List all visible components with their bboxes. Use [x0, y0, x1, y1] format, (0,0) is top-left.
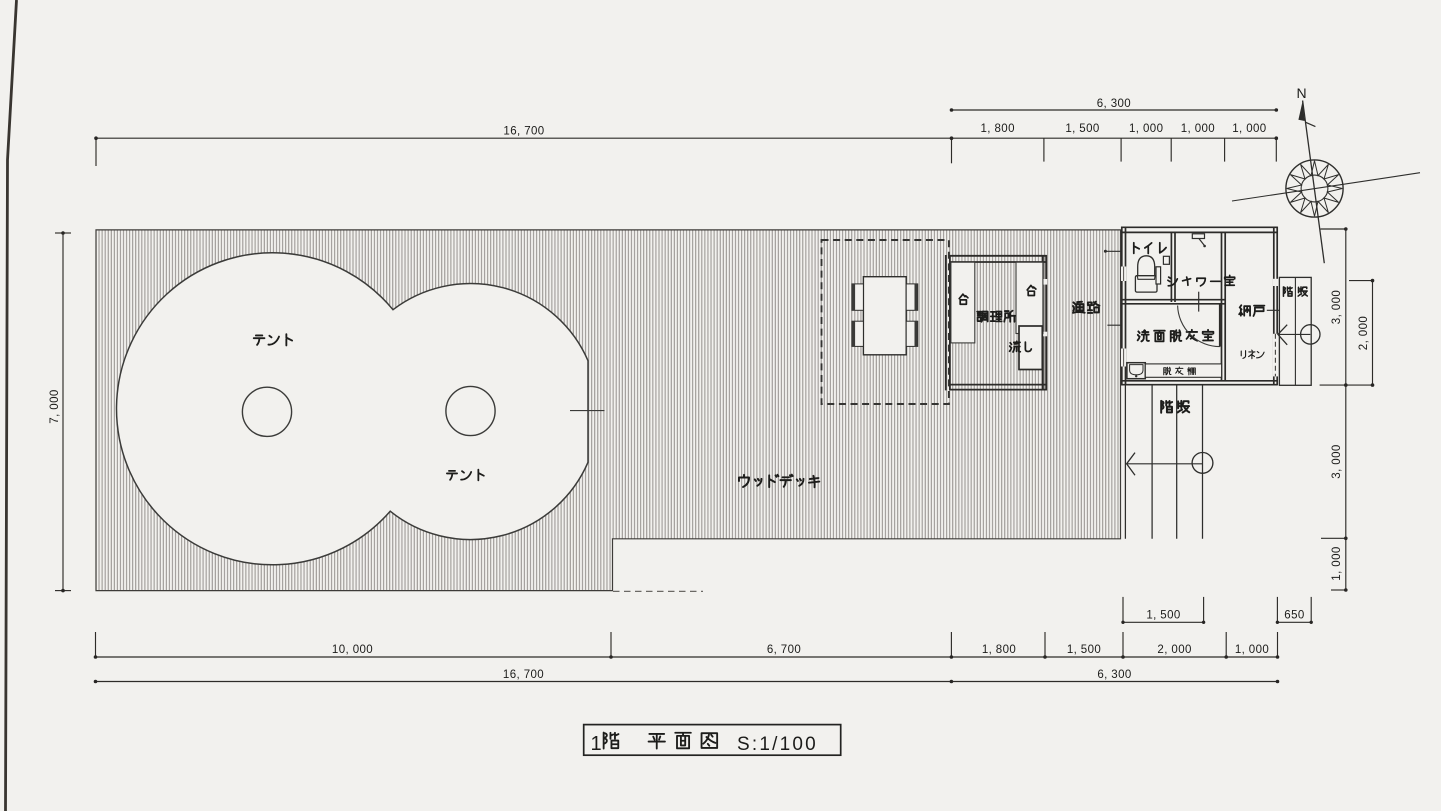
svg-text:2, 000: 2, 000	[1358, 316, 1370, 350]
svg-text:1, 800: 1, 800	[981, 123, 1015, 135]
svg-text:650: 650	[1284, 610, 1304, 622]
svg-text:16, 700: 16, 700	[503, 669, 544, 681]
svg-text:3, 000: 3, 000	[1331, 444, 1343, 478]
svg-text:10, 000: 10, 000	[332, 644, 373, 656]
svg-text:1, 800: 1, 800	[982, 644, 1016, 656]
svg-text:3, 000: 3, 000	[1331, 290, 1343, 324]
svg-text:1, 000: 1, 000	[1331, 546, 1343, 580]
svg-text:1, 000: 1, 000	[1235, 644, 1269, 656]
svg-text:1: 1	[591, 733, 602, 755]
svg-text:7, 000: 7, 000	[49, 389, 61, 423]
svg-text:1, 500: 1, 500	[1067, 644, 1101, 656]
svg-text:16, 700: 16, 700	[503, 126, 544, 138]
svg-text:1, 000: 1, 000	[1181, 123, 1215, 135]
svg-text:N: N	[1297, 85, 1307, 101]
svg-text:1, 500: 1, 500	[1146, 610, 1180, 622]
svg-text:6, 300: 6, 300	[1097, 98, 1131, 110]
svg-text:1, 000: 1, 000	[1232, 123, 1266, 135]
svg-text:1, 500: 1, 500	[1065, 123, 1099, 135]
svg-text:6, 700: 6, 700	[767, 644, 801, 656]
svg-text:2, 000: 2, 000	[1157, 644, 1191, 656]
svg-text:6, 300: 6, 300	[1097, 669, 1131, 681]
svg-text:1, 000: 1, 000	[1129, 123, 1163, 135]
svg-text:S:1/100: S:1/100	[737, 734, 818, 755]
